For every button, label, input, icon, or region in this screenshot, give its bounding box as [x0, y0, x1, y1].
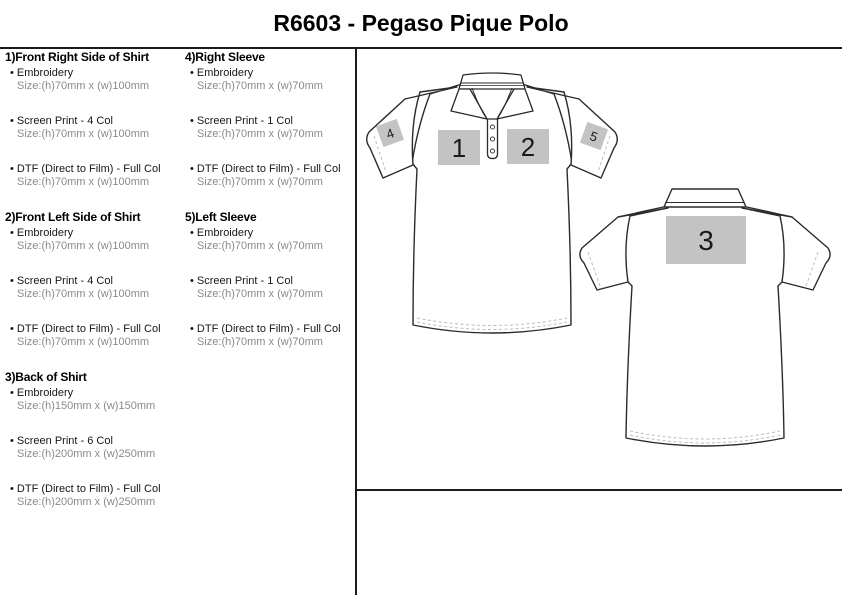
decoration-size: Size:(h)70mm x (w)70mm [185, 80, 341, 93]
decoration-size: Size:(h)70mm x (w)100mm [5, 240, 161, 253]
decoration-size: Size:(h)70mm x (w)70mm [185, 336, 341, 349]
placement-marker-2-label: 2 [521, 132, 535, 162]
decoration-size: Size:(h)70mm x (w)70mm [185, 128, 341, 141]
placements-column-1: 1)Front Right Side of Shirt• EmbroideryS… [5, 51, 161, 531]
lower-divider [355, 489, 842, 491]
decoration-item: • EmbroiderySize:(h)70mm x (w)100mm [5, 227, 161, 253]
decoration-item: • EmbroiderySize:(h)70mm x (w)100mm [5, 67, 161, 93]
placement-section: 3)Back of Shirt• EmbroiderySize:(h)150mm… [5, 371, 161, 509]
decoration-method: • Screen Print - 4 Col [5, 275, 161, 288]
vertical-divider [355, 47, 357, 595]
section-heading: 1)Front Right Side of Shirt [5, 51, 161, 64]
decoration-item: • EmbroiderySize:(h)70mm x (w)70mm [185, 227, 341, 253]
placement-marker-1-label: 1 [452, 133, 466, 163]
decoration-method: • DTF (Direct to Film) - Full Col [5, 483, 161, 496]
header-divider [0, 47, 842, 49]
section-heading: 5)Left Sleeve [185, 211, 341, 224]
decoration-method: • Embroidery [5, 227, 161, 240]
collar-band [459, 73, 525, 89]
decoration-method: • Screen Print - 4 Col [5, 115, 161, 128]
decoration-method: • Screen Print - 1 Col [185, 115, 341, 128]
section-heading: 4)Right Sleeve [185, 51, 341, 64]
decoration-method: • Screen Print - 1 Col [185, 275, 341, 288]
placement-section: 5)Left Sleeve• EmbroiderySize:(h)70mm x … [185, 211, 341, 349]
decoration-size: Size:(h)150mm x (w)150mm [5, 400, 161, 413]
decoration-size: Size:(h)70mm x (w)70mm [185, 288, 341, 301]
button-3 [490, 149, 494, 153]
decoration-item: • Screen Print - 6 ColSize:(h)200mm x (w… [5, 435, 161, 461]
decoration-size: Size:(h)70mm x (w)70mm [185, 176, 341, 189]
decoration-item: • DTF (Direct to Film) - Full ColSize:(h… [5, 323, 161, 349]
button-1 [490, 125, 494, 129]
placement-section: 1)Front Right Side of Shirt• EmbroideryS… [5, 51, 161, 189]
placements-column-2: 4)Right Sleeve• EmbroiderySize:(h)70mm x… [185, 51, 341, 371]
decoration-size: Size:(h)200mm x (w)250mm [5, 496, 161, 509]
decoration-size: Size:(h)70mm x (w)100mm [5, 288, 161, 301]
decoration-method: • Embroidery [5, 387, 161, 400]
decoration-item: • EmbroiderySize:(h)70mm x (w)70mm [185, 67, 341, 93]
back-collar [664, 189, 746, 207]
decoration-item: • Screen Print - 1 ColSize:(h)70mm x (w)… [185, 115, 341, 141]
decoration-item: • Screen Print - 4 ColSize:(h)70mm x (w)… [5, 275, 161, 301]
decoration-method: • DTF (Direct to Film) - Full Col [5, 323, 161, 336]
decoration-item: • EmbroiderySize:(h)150mm x (w)150mm [5, 387, 161, 413]
decoration-size: Size:(h)70mm x (w)100mm [5, 128, 161, 141]
decoration-method: • DTF (Direct to Film) - Full Col [185, 163, 341, 176]
decoration-item: • DTF (Direct to Film) - Full ColSize:(h… [5, 483, 161, 509]
decoration-method: • Embroidery [5, 67, 161, 80]
placement-section: 4)Right Sleeve• EmbroiderySize:(h)70mm x… [185, 51, 341, 189]
page-title: R6603 - Pegaso Pique Polo [0, 10, 842, 37]
decoration-size: Size:(h)70mm x (w)70mm [185, 240, 341, 253]
decoration-method: • Embroidery [185, 67, 341, 80]
button-2 [490, 137, 494, 141]
decoration-method: • DTF (Direct to Film) - Full Col [185, 323, 341, 336]
decoration-method: • Screen Print - 6 Col [5, 435, 161, 448]
section-heading: 2)Front Left Side of Shirt [5, 211, 161, 224]
decoration-size: Size:(h)70mm x (w)100mm [5, 80, 161, 93]
decoration-item: • Screen Print - 4 ColSize:(h)70mm x (w)… [5, 115, 161, 141]
decoration-item: • Screen Print - 1 ColSize:(h)70mm x (w)… [185, 275, 341, 301]
decoration-size: Size:(h)70mm x (w)100mm [5, 176, 161, 189]
decoration-method: • Embroidery [185, 227, 341, 240]
decoration-item: • DTF (Direct to Film) - Full ColSize:(h… [5, 163, 161, 189]
placement-section: 2)Front Left Side of Shirt• EmbroiderySi… [5, 211, 161, 349]
decoration-item: • DTF (Direct to Film) - Full ColSize:(h… [185, 163, 341, 189]
decoration-item: • DTF (Direct to Film) - Full ColSize:(h… [185, 323, 341, 349]
spec-sheet-page: R6603 - Pegaso Pique Polo 1)Front Right … [0, 0, 842, 595]
section-heading: 3)Back of Shirt [5, 371, 161, 384]
decoration-method: • DTF (Direct to Film) - Full Col [5, 163, 161, 176]
decoration-size: Size:(h)70mm x (w)100mm [5, 336, 161, 349]
placement-marker-3-label: 3 [698, 225, 714, 256]
back-markers: 3 [666, 216, 746, 264]
back-shirt-diagram: 3 [572, 182, 834, 467]
decoration-size: Size:(h)200mm x (w)250mm [5, 448, 161, 461]
